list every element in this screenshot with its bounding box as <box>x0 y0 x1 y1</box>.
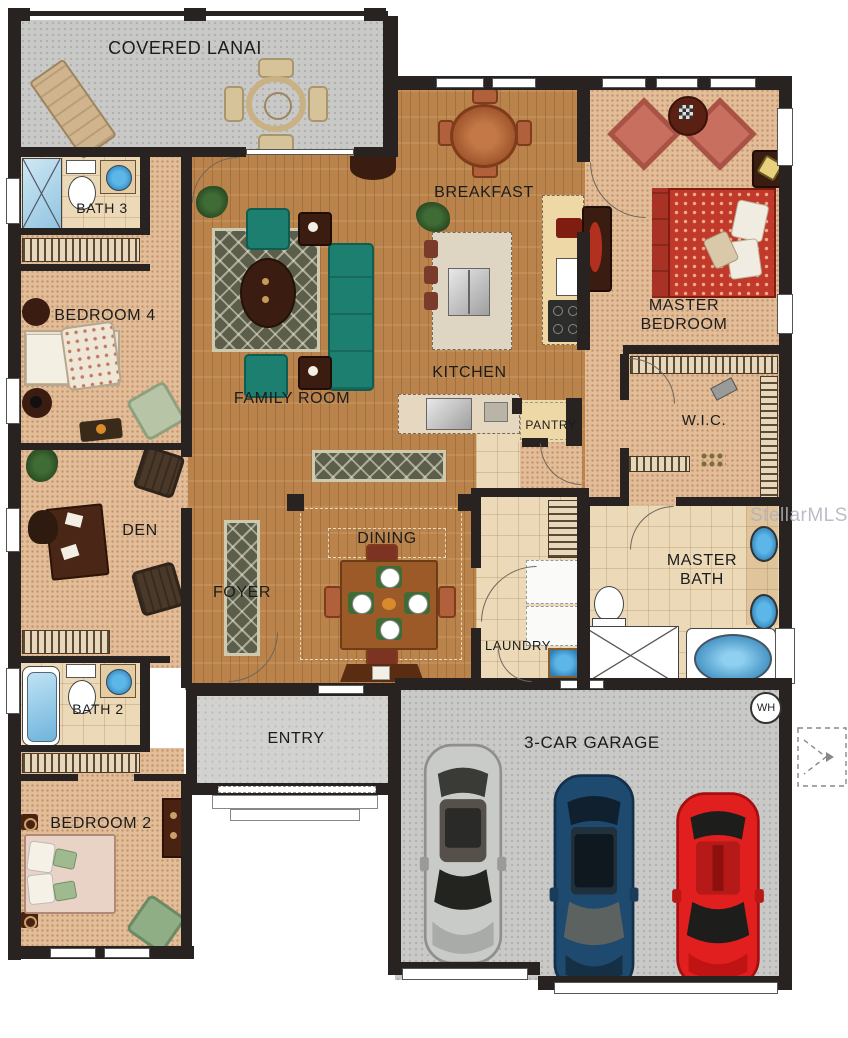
window <box>656 78 698 88</box>
room-label-bath2: BATH 2 <box>58 701 138 718</box>
sliding-door <box>246 149 354 155</box>
wall <box>181 157 192 457</box>
shower <box>583 626 679 686</box>
window <box>777 108 793 166</box>
bar-stool <box>424 266 438 284</box>
bar-stool <box>424 240 438 258</box>
plate <box>380 620 400 640</box>
closet-shelving <box>22 753 140 773</box>
wall <box>186 147 246 157</box>
entry-sill <box>218 786 376 793</box>
end-table-decor <box>308 222 318 232</box>
patio-chair <box>224 86 244 122</box>
console-decor <box>372 666 390 680</box>
floor-plan: COVERED LANAI BATH 3 BEDROOM 4 DEN BATH … <box>0 0 848 1038</box>
wall <box>8 8 21 158</box>
window <box>710 78 756 88</box>
plate <box>380 568 400 588</box>
sofa <box>328 243 374 391</box>
sink <box>750 594 778 630</box>
closet-shelving <box>22 238 140 262</box>
wall <box>471 628 481 688</box>
window <box>50 948 96 958</box>
wall <box>623 345 792 354</box>
column <box>458 494 475 511</box>
coffee-table <box>240 258 296 328</box>
bed-post-knob <box>24 916 37 929</box>
armchair <box>246 208 290 250</box>
wall <box>20 443 192 450</box>
wall <box>140 662 150 746</box>
desk-chair <box>28 510 58 544</box>
hall-runner-rug <box>312 450 446 482</box>
window <box>6 178 20 224</box>
room-label-bath3: BATH 3 <box>62 200 142 217</box>
wall <box>577 88 590 162</box>
wall <box>20 264 150 271</box>
front-door <box>318 685 364 694</box>
closet-shelving <box>760 376 778 504</box>
sink <box>750 526 778 562</box>
wall <box>354 147 398 157</box>
vanity-cabinet <box>66 664 96 678</box>
burner <box>553 306 563 316</box>
pillow <box>26 840 56 873</box>
wall <box>20 774 78 781</box>
wall <box>184 8 206 21</box>
wall <box>20 228 150 235</box>
window <box>436 78 484 88</box>
sink <box>106 165 132 191</box>
garage-door <box>402 968 528 980</box>
breakfast-chair <box>472 88 498 104</box>
room-label-master-bedroom: MASTER BEDROOM <box>628 297 740 335</box>
porch-step <box>230 809 360 821</box>
closet-shelving <box>628 456 690 472</box>
wall <box>8 147 188 157</box>
column <box>287 494 304 511</box>
plate <box>408 594 428 614</box>
table-decor <box>679 105 693 119</box>
lamp <box>30 396 42 408</box>
patio-chair <box>258 58 294 78</box>
bed-footboard <box>652 188 670 298</box>
window <box>6 508 20 552</box>
wall <box>20 745 150 752</box>
closet-shelving <box>22 630 110 654</box>
dining-chair <box>366 648 398 666</box>
wall <box>512 398 522 414</box>
room-label-lanai: COVERED LANAI <box>100 38 270 59</box>
bar-stool <box>424 292 438 310</box>
plate <box>352 594 372 614</box>
room-label-den: DEN <box>105 522 175 541</box>
wall <box>471 488 589 497</box>
accent-pillow <box>53 880 78 902</box>
dresser-runner <box>588 222 602 272</box>
sink <box>106 669 132 695</box>
breakfast-chair <box>516 120 532 146</box>
coffee-table-decor <box>262 278 269 285</box>
room-label-garage: 3-CAR GARAGE <box>512 733 672 753</box>
dresser-knob <box>170 832 177 839</box>
car-silver <box>418 740 508 968</box>
wall <box>388 688 401 975</box>
wall <box>585 497 629 506</box>
window <box>6 378 20 424</box>
service-door-swing <box>796 726 848 788</box>
room-label-breakfast: BREAKFAST <box>424 184 544 203</box>
wall <box>8 946 194 959</box>
burner <box>553 324 563 334</box>
vanity-cabinet <box>66 160 96 174</box>
dining-chair <box>438 586 456 618</box>
wall <box>186 683 197 795</box>
breakfast-table <box>450 104 518 168</box>
room-label-dining: DINING <box>342 530 432 549</box>
wall <box>779 76 792 990</box>
small-appliance <box>484 402 508 422</box>
tray-decor <box>96 424 106 434</box>
coffee-table-decor <box>262 296 269 303</box>
patio-table-center <box>264 92 292 120</box>
wall <box>577 497 590 689</box>
window <box>602 78 646 88</box>
prep-sink <box>426 398 472 430</box>
window <box>777 294 793 334</box>
bathtub-basin <box>694 634 772 684</box>
end-table-decor <box>308 366 318 376</box>
watermark: StellarMLS <box>750 505 848 527</box>
car-red <box>672 790 764 990</box>
wall <box>181 508 192 688</box>
wall <box>620 354 629 400</box>
car-blue <box>544 772 644 994</box>
water-heater-badge: WH <box>750 692 782 724</box>
room-label-bedroom2: BEDROOM 2 <box>36 815 166 834</box>
porch-step <box>212 795 378 809</box>
room-label-entry: ENTRY <box>256 730 336 749</box>
centerpiece <box>382 598 396 610</box>
room-label-laundry: LAUNDRY <box>478 638 558 653</box>
window <box>6 668 20 714</box>
shoes <box>700 452 726 468</box>
window <box>775 628 795 684</box>
patio-chair <box>308 86 328 122</box>
dresser-knob <box>170 812 177 819</box>
room-label-master-bath: MASTER BATH <box>654 552 750 590</box>
room-label-kitchen: KITCHEN <box>422 364 517 383</box>
room-label-pantry: PANTRY <box>524 418 578 432</box>
wall <box>577 232 590 350</box>
room-label-bedroom4: BEDROOM 4 <box>40 307 170 326</box>
shower <box>22 158 62 230</box>
toilet <box>594 586 624 622</box>
window <box>492 78 536 88</box>
wall <box>181 774 192 954</box>
wall <box>8 150 21 960</box>
room-label-wic: W.I.C. <box>672 412 736 430</box>
wall <box>186 683 398 696</box>
laundry-shelving <box>548 500 578 558</box>
window <box>104 948 150 958</box>
wall <box>140 157 150 233</box>
corner-console <box>350 156 396 180</box>
sink-divider <box>468 270 470 314</box>
room-label-foyer: FOYER <box>202 584 282 603</box>
bathtub-basin <box>27 672 57 742</box>
garage-door <box>554 982 778 994</box>
pillow <box>27 873 56 906</box>
floral-pillow <box>60 321 122 392</box>
room-label-family-room: FAMILY ROOM <box>222 390 362 409</box>
